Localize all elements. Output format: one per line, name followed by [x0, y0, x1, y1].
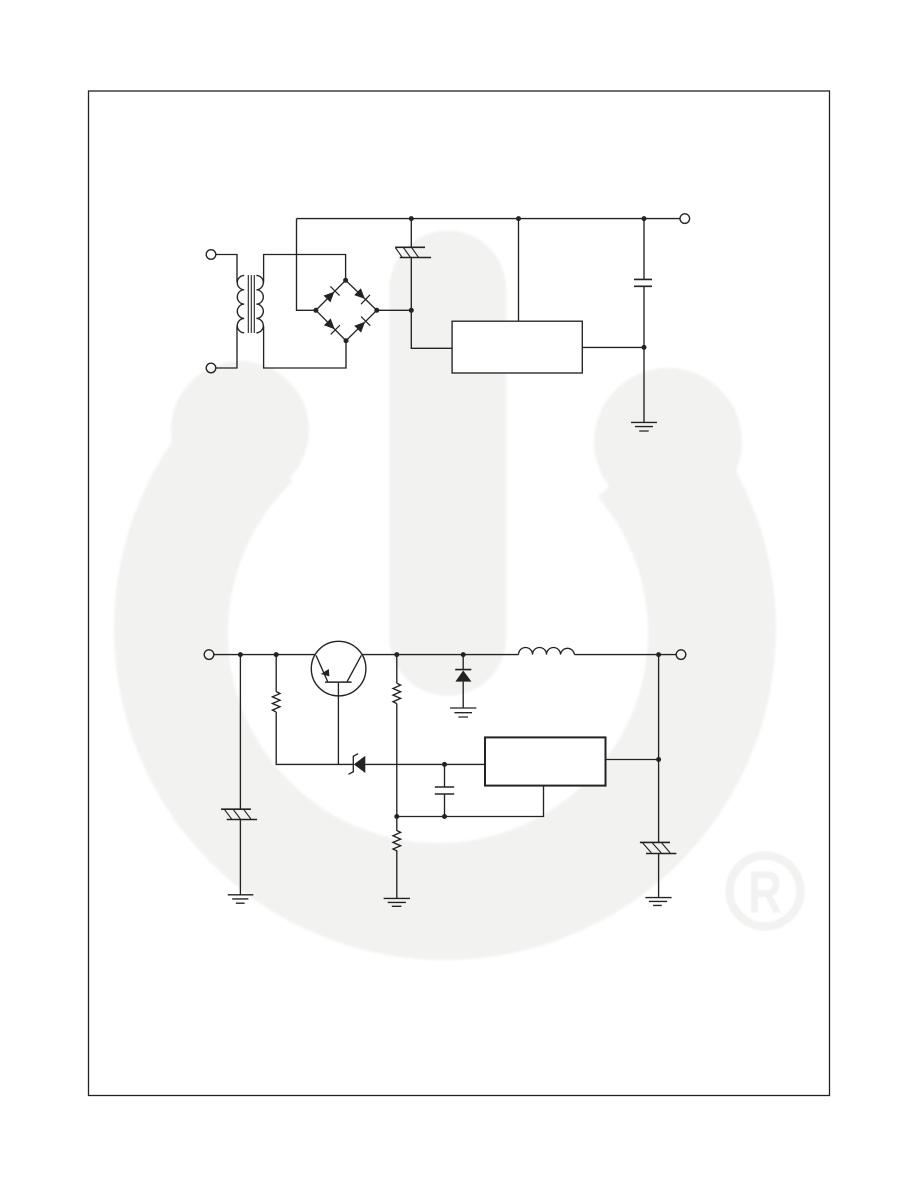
svg-text:R: R [748, 860, 782, 926]
